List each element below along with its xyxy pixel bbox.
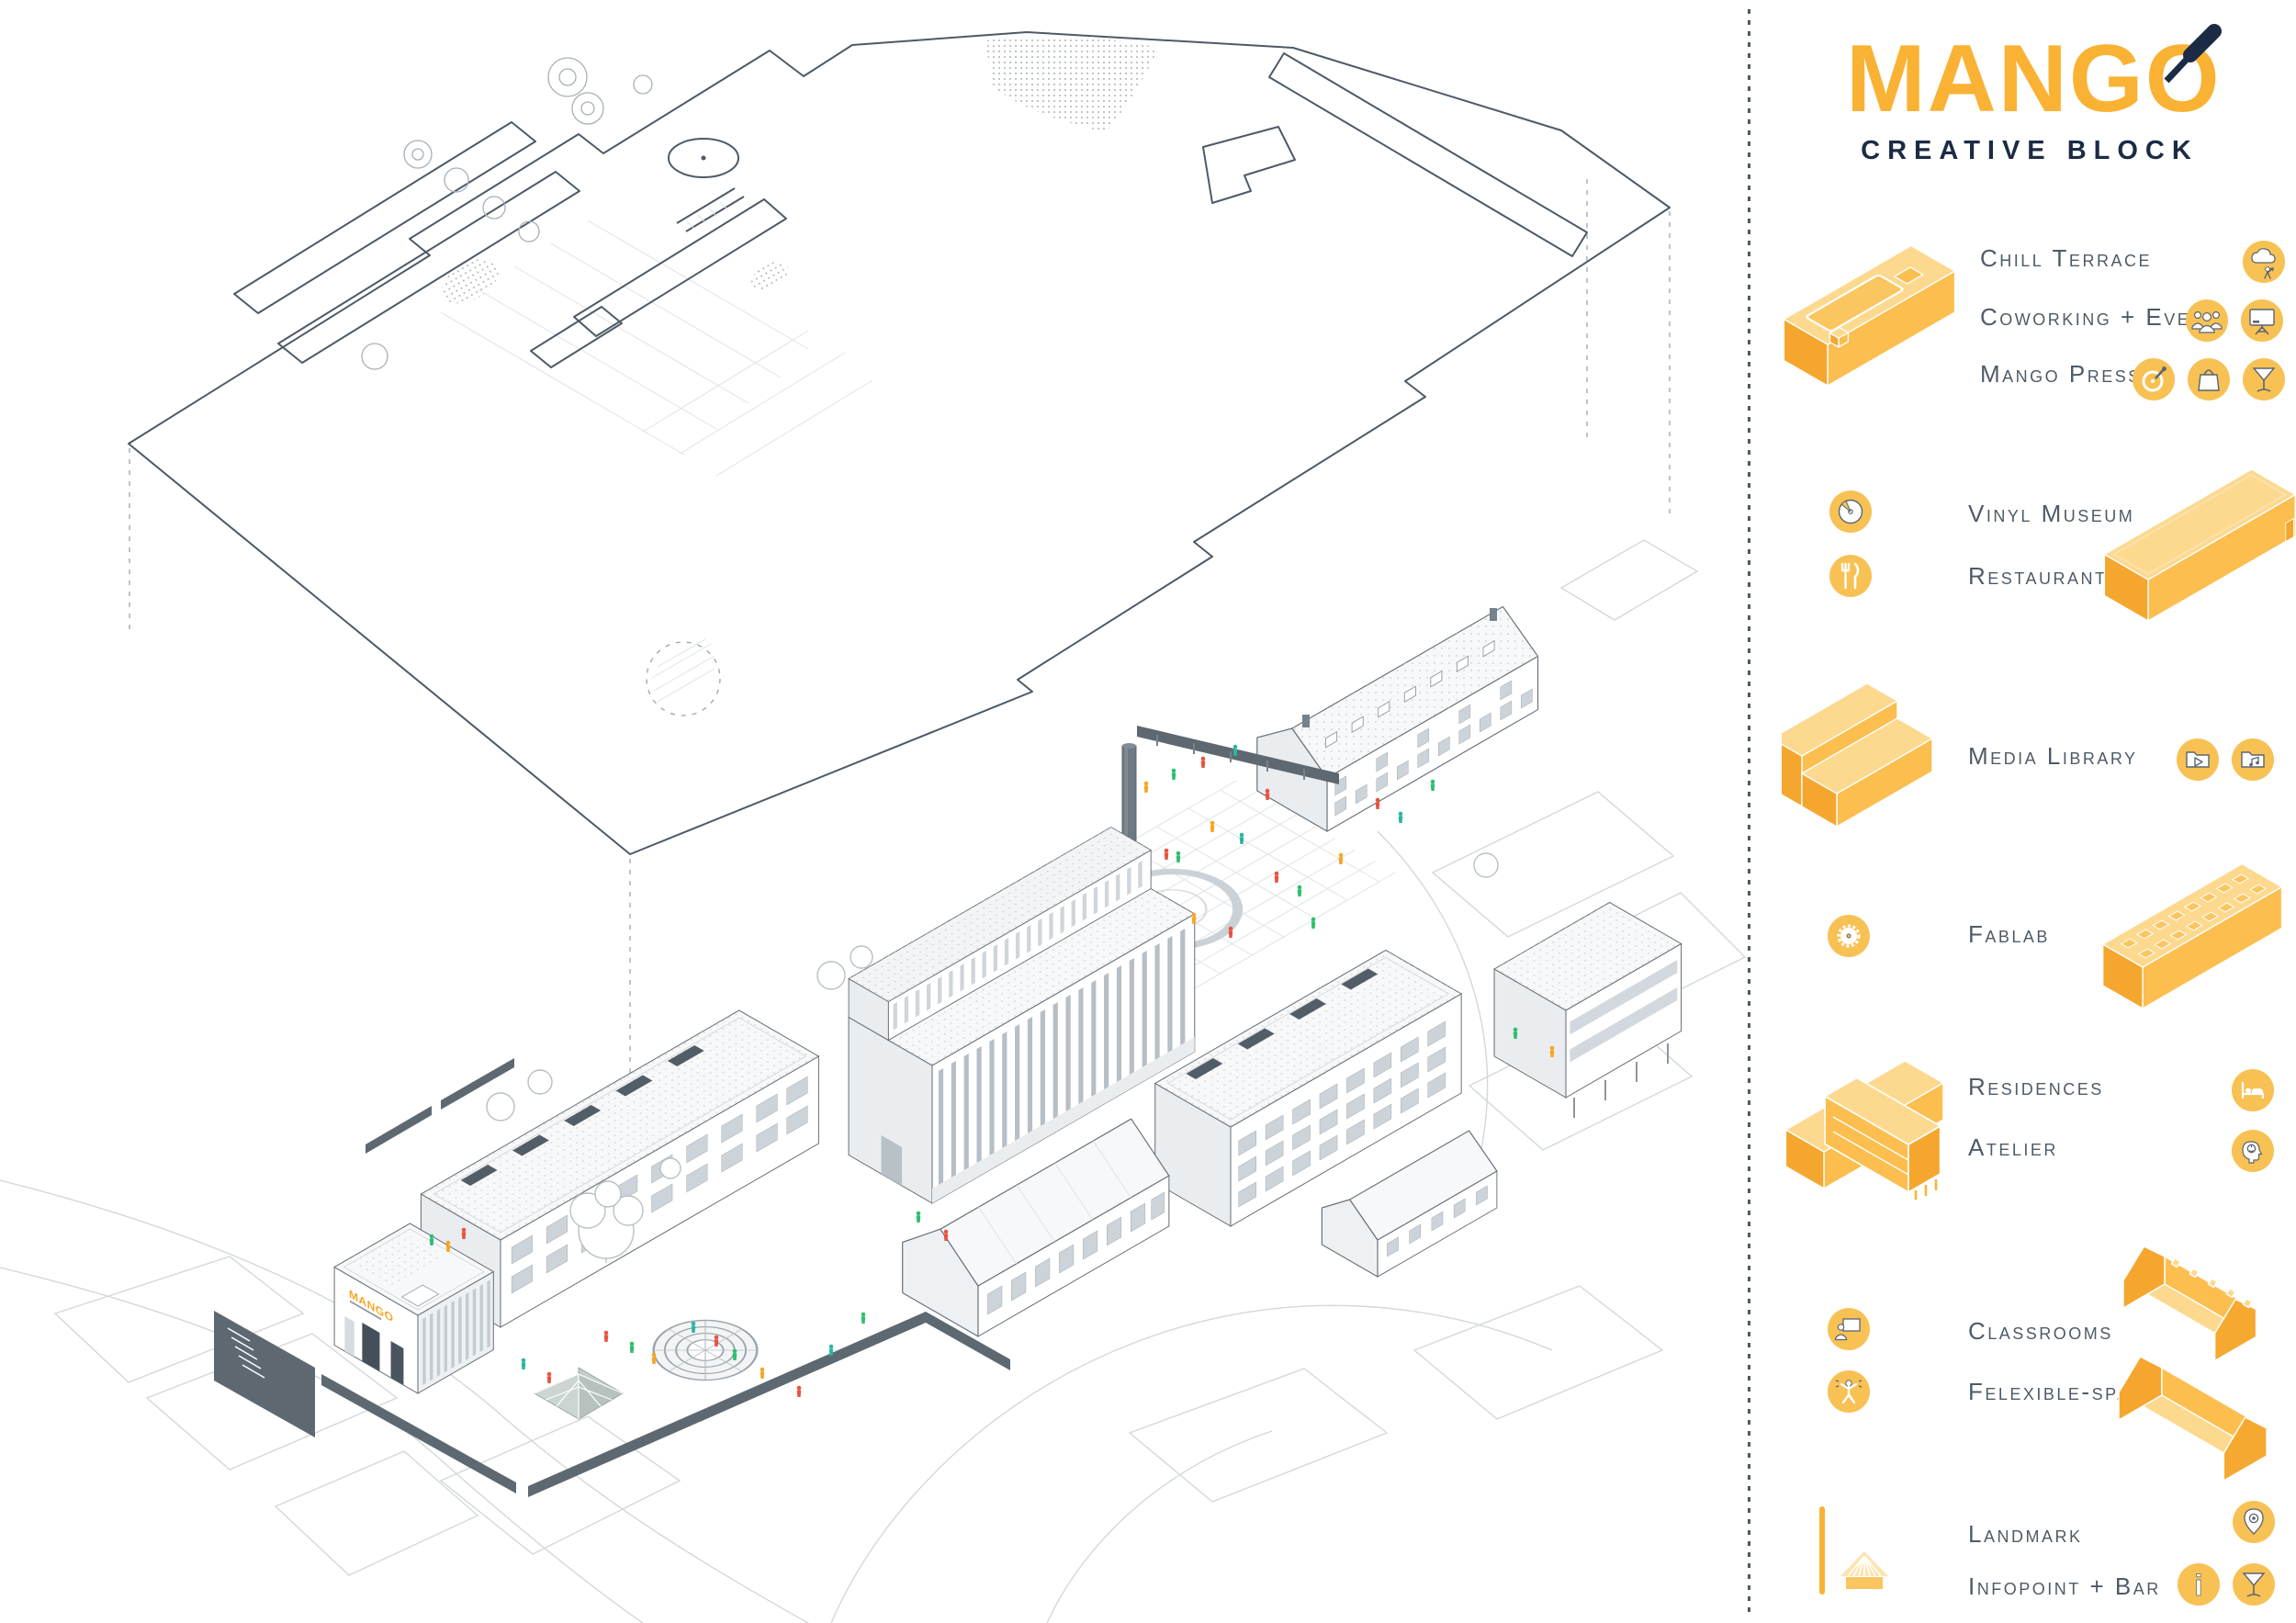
weather-person-icon: [2241, 239, 2287, 285]
legend-label: Fablab: [1968, 920, 2050, 948]
teacher-board-icon: [1826, 1306, 1872, 1352]
martini-glass-icon: [2241, 356, 2287, 402]
residences-block-model: [1778, 1034, 1947, 1200]
museum-block-model: [2101, 468, 2296, 625]
info-icon: i: [2176, 1561, 2222, 1607]
brand-subtitle: CREATIVE BLOCK: [1846, 136, 2213, 166]
svg-text:i: i: [2195, 1569, 2203, 1602]
legend-label: Infopoint + Bar: [1968, 1572, 2161, 1600]
location-pin-icon: [2231, 1499, 2277, 1545]
legend-label: Chill Terrace: [1980, 244, 2152, 272]
music-folder-icon: [2230, 737, 2276, 783]
building-complex: MANGO: [214, 607, 1682, 1498]
vinyl-player-icon: [2131, 356, 2177, 402]
legend-label: Atelier: [1968, 1133, 2058, 1161]
saw-blade-icon: [1826, 913, 1872, 959]
shopping-bag-icon: [2186, 356, 2232, 402]
legend-label: Landmark: [1968, 1520, 2082, 1548]
pilotis-block: [1494, 903, 1682, 1119]
landmark-chimney-model: [1819, 1506, 1825, 1595]
classrooms-block-model: [2120, 1229, 2267, 1367]
legend-label: Media Library: [1968, 742, 2138, 770]
legend-label: Mango Press: [1980, 360, 2142, 388]
active-person-icon: [1826, 1369, 1872, 1414]
brand-logo: MANGO CREATIVE BLOCK: [1846, 31, 2213, 166]
video-folder-icon: [2175, 737, 2221, 783]
fork-knife-icon: [1828, 553, 1874, 599]
brand-name: MANGO: [1846, 31, 2222, 127]
legend-label: Residences: [1968, 1073, 2104, 1100]
poster: .s{stroke:#6a737c;stroke-width:1.2;strok…: [0, 0, 2296, 1623]
flexible-spaces-block-model: [2115, 1348, 2280, 1484]
record-needle-icon: [2146, 20, 2234, 108]
dotted-divider: [1748, 9, 1750, 1614]
martini-glass-icon: [2231, 1561, 2277, 1607]
amphitheatre: [632, 1308, 778, 1392]
legend-label: Classrooms: [1968, 1317, 2113, 1345]
vinyl-record-icon: [1828, 489, 1874, 535]
bed-icon: [2230, 1067, 2276, 1113]
creative-head-icon: [2230, 1128, 2276, 1174]
legend-label: Restaurant: [1968, 562, 2107, 590]
people-group-icon: [2184, 298, 2230, 344]
dormer-building: [1257, 607, 1538, 832]
fablab-block-model: [2097, 860, 2286, 1014]
presentation-screen-icon: [2239, 298, 2285, 344]
terrace-block-model: [1780, 235, 1964, 391]
media-block-model: [1782, 680, 1945, 834]
infopoint-pavilion-model: [1840, 1549, 1889, 1595]
axonometric-drawing: .s{stroke:#6a737c;stroke-width:1.2;strok…: [0, 0, 1750, 1623]
